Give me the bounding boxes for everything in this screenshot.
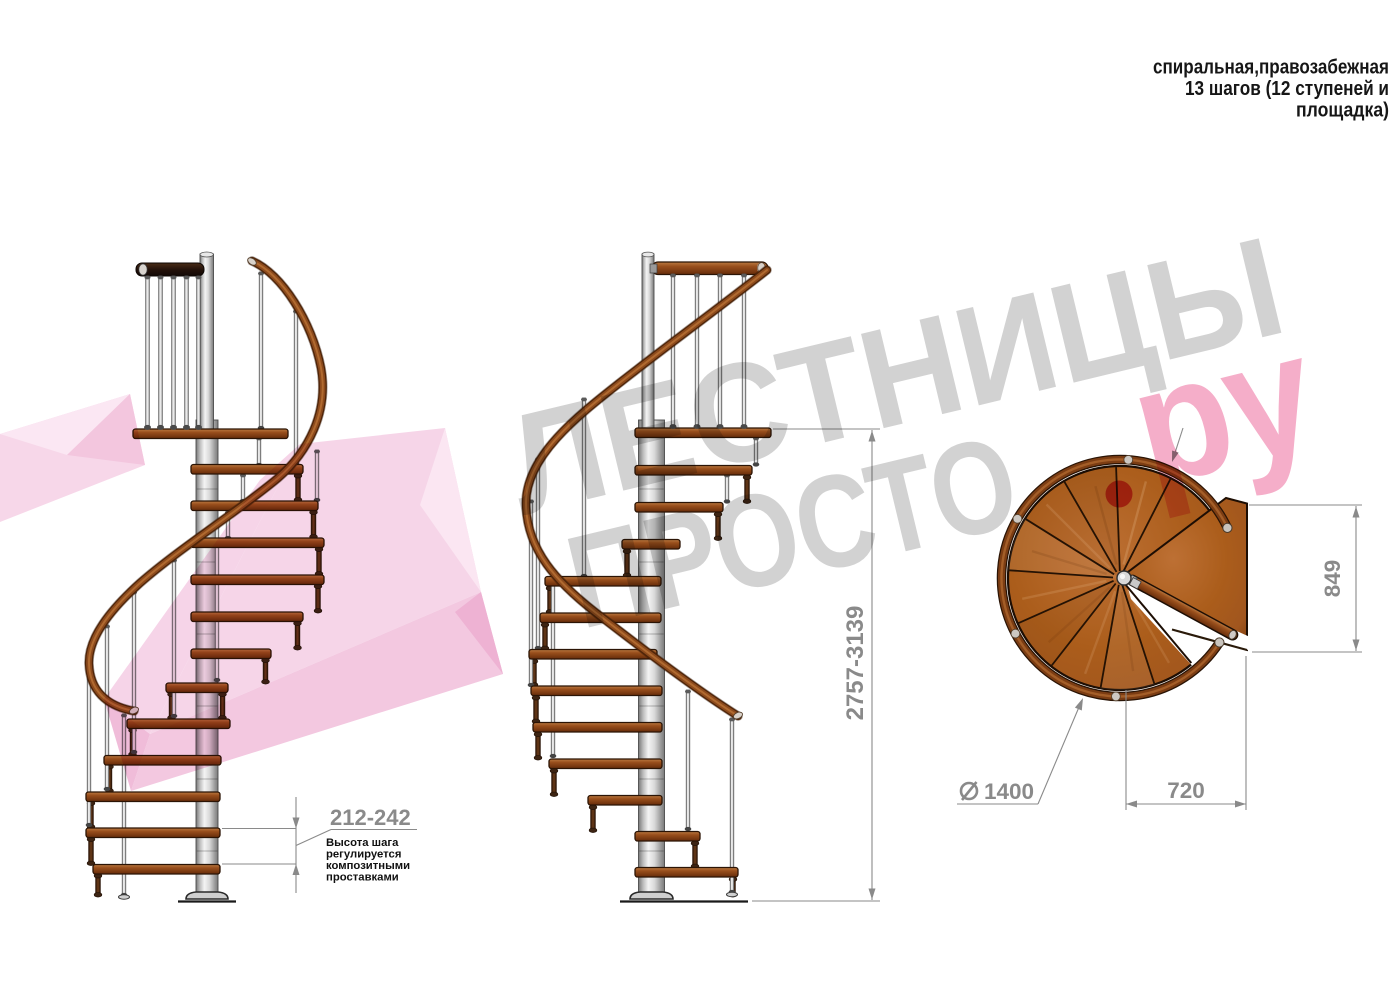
svg-text:849: 849 (1320, 560, 1345, 598)
svg-text:720: 720 (1167, 778, 1205, 803)
svg-text:1400: 1400 (984, 779, 1034, 804)
svg-text:Высота шагарегулируетсякомпози: Высота шагарегулируетсякомпозитнымипрост… (326, 837, 410, 884)
svg-text:212-242: 212-242 (330, 805, 411, 830)
svg-text:2757-3139: 2757-3139 (842, 606, 869, 721)
